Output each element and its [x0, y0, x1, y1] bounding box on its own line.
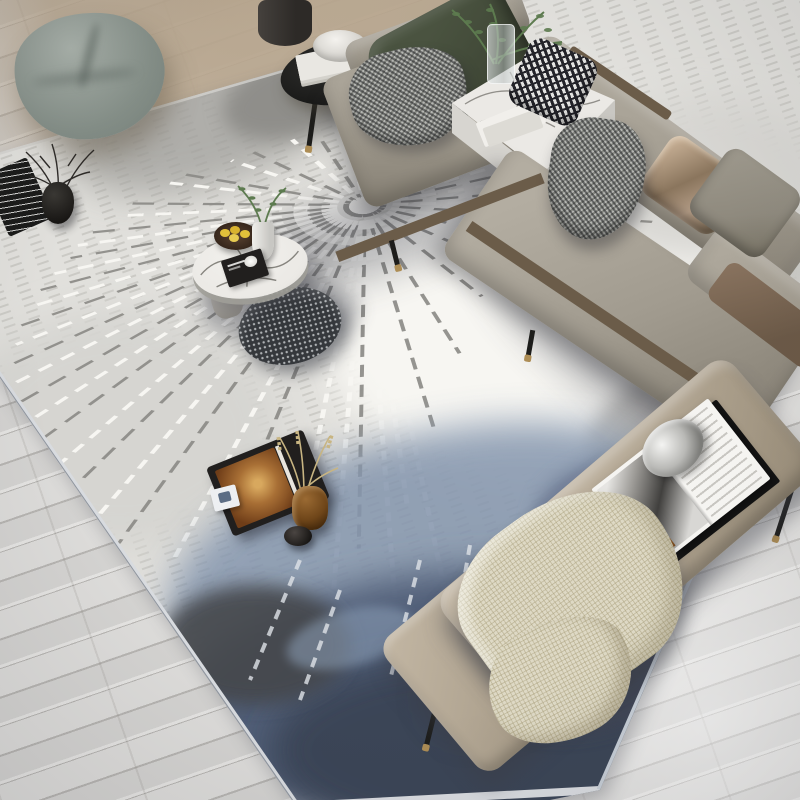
ottoman-bench	[0, 0, 800, 800]
living-room-scene	[0, 0, 800, 800]
